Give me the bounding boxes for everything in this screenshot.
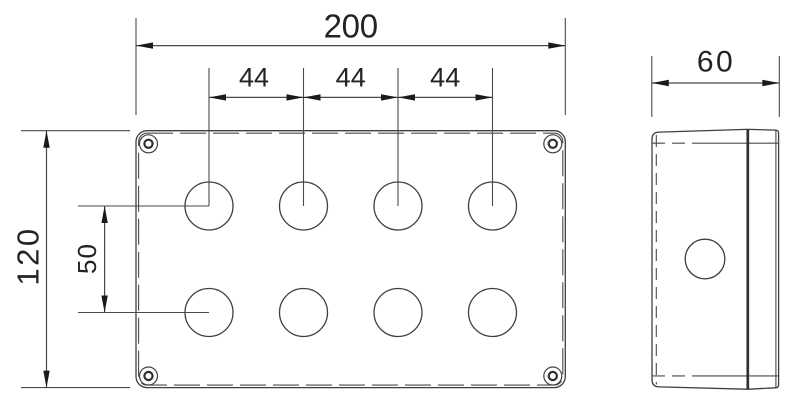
- svg-text:200: 200: [324, 8, 378, 45]
- svg-text:60: 60: [697, 46, 735, 79]
- svg-text:44: 44: [336, 63, 366, 93]
- svg-text:44: 44: [430, 63, 460, 93]
- svg-text:44: 44: [239, 63, 269, 93]
- svg-text:120: 120: [11, 226, 46, 285]
- svg-text:50: 50: [72, 243, 102, 274]
